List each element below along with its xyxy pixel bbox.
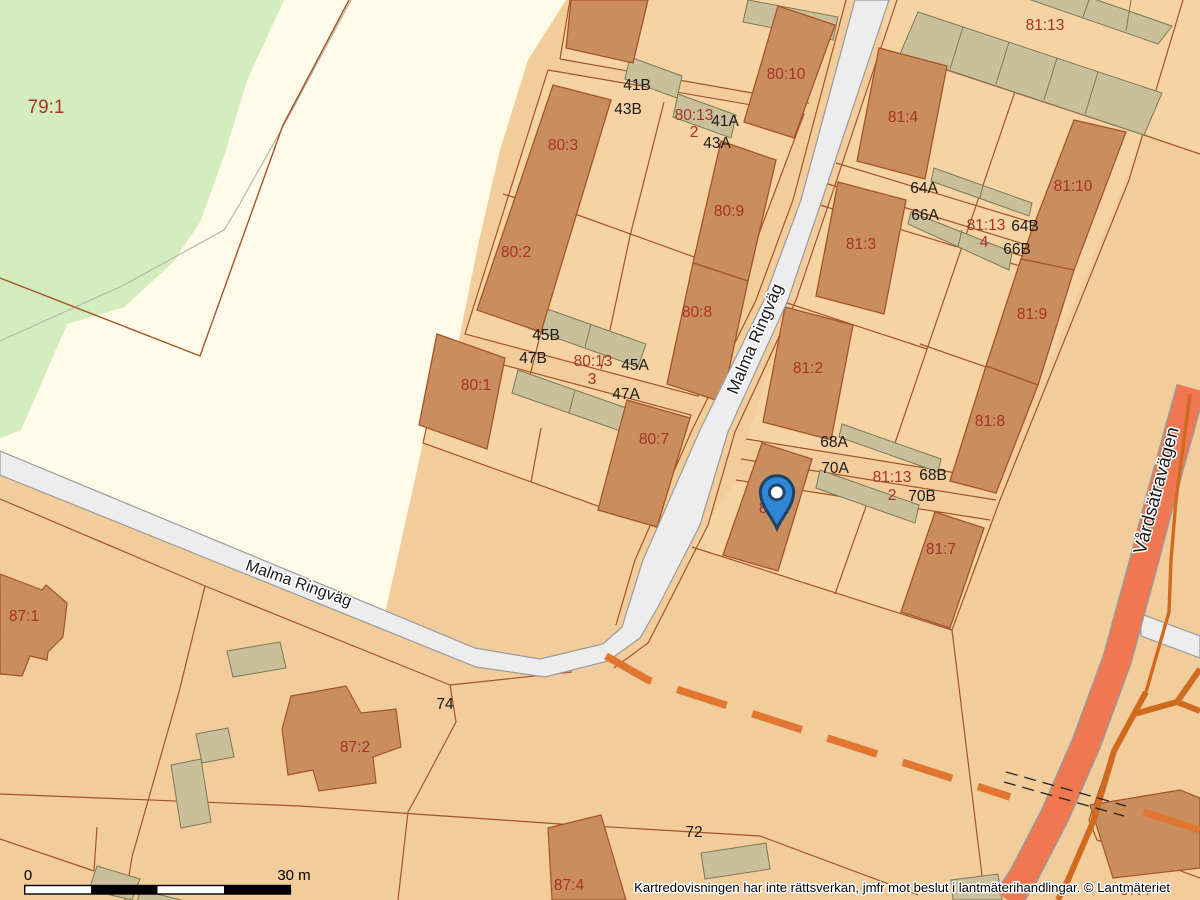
svg-text:80:2: 80:2 (501, 244, 531, 261)
svg-text:72: 72 (685, 824, 702, 841)
svg-text:3: 3 (588, 371, 597, 388)
svg-text:79:1: 79:1 (28, 97, 65, 118)
svg-text:Kartredovisningen har inte rät: Kartredovisningen har inte rättsverkan, … (634, 880, 1170, 895)
svg-text:80:10: 80:10 (767, 66, 806, 83)
svg-text:47B: 47B (519, 350, 547, 367)
svg-text:81:10: 81:10 (1054, 178, 1093, 195)
svg-text:43B: 43B (614, 101, 642, 118)
svg-text:30 m: 30 m (277, 867, 310, 884)
svg-text:74: 74 (436, 696, 454, 713)
svg-text:80:13: 80:13 (574, 353, 613, 370)
svg-text:68B: 68B (919, 467, 947, 484)
svg-text:43A: 43A (703, 135, 731, 152)
svg-text:81:13: 81:13 (967, 217, 1006, 234)
svg-text:80:13: 80:13 (675, 107, 714, 124)
svg-text:47A: 47A (612, 386, 640, 403)
svg-text:87:4: 87:4 (554, 877, 585, 894)
svg-text:81:13: 81:13 (1026, 17, 1065, 34)
svg-text:80:9: 80:9 (714, 203, 744, 220)
svg-text:66A: 66A (911, 207, 939, 224)
svg-text:80:1: 80:1 (461, 377, 491, 394)
svg-text:81:13: 81:13 (873, 469, 912, 486)
svg-text:4: 4 (980, 234, 989, 251)
svg-text:81:8: 81:8 (975, 413, 1005, 430)
svg-text:70A: 70A (821, 460, 849, 477)
svg-text:80:3: 80:3 (548, 137, 578, 154)
svg-text:81:9: 81:9 (1017, 306, 1047, 323)
svg-text:68A: 68A (820, 434, 848, 451)
svg-text:66B: 66B (1003, 241, 1031, 258)
svg-text:81:2: 81:2 (793, 360, 823, 377)
svg-text:80:8: 80:8 (682, 304, 712, 321)
svg-text:0: 0 (24, 867, 32, 884)
svg-text:70B: 70B (908, 488, 936, 505)
svg-text:81:4: 81:4 (888, 109, 919, 126)
svg-text:2: 2 (888, 487, 897, 504)
svg-text:80:7: 80:7 (639, 431, 669, 448)
svg-text:81:3: 81:3 (846, 236, 876, 253)
svg-text:2: 2 (690, 124, 699, 141)
svg-text:81:7: 81:7 (926, 541, 956, 558)
svg-text:41A: 41A (711, 113, 739, 130)
svg-text:87:1: 87:1 (9, 608, 39, 625)
svg-text:64A: 64A (910, 180, 938, 197)
svg-text:45A: 45A (621, 357, 649, 374)
svg-text:87:2: 87:2 (340, 739, 370, 756)
svg-text:41B: 41B (623, 77, 651, 94)
svg-text:64B: 64B (1011, 218, 1039, 235)
svg-text:45B: 45B (532, 327, 560, 344)
